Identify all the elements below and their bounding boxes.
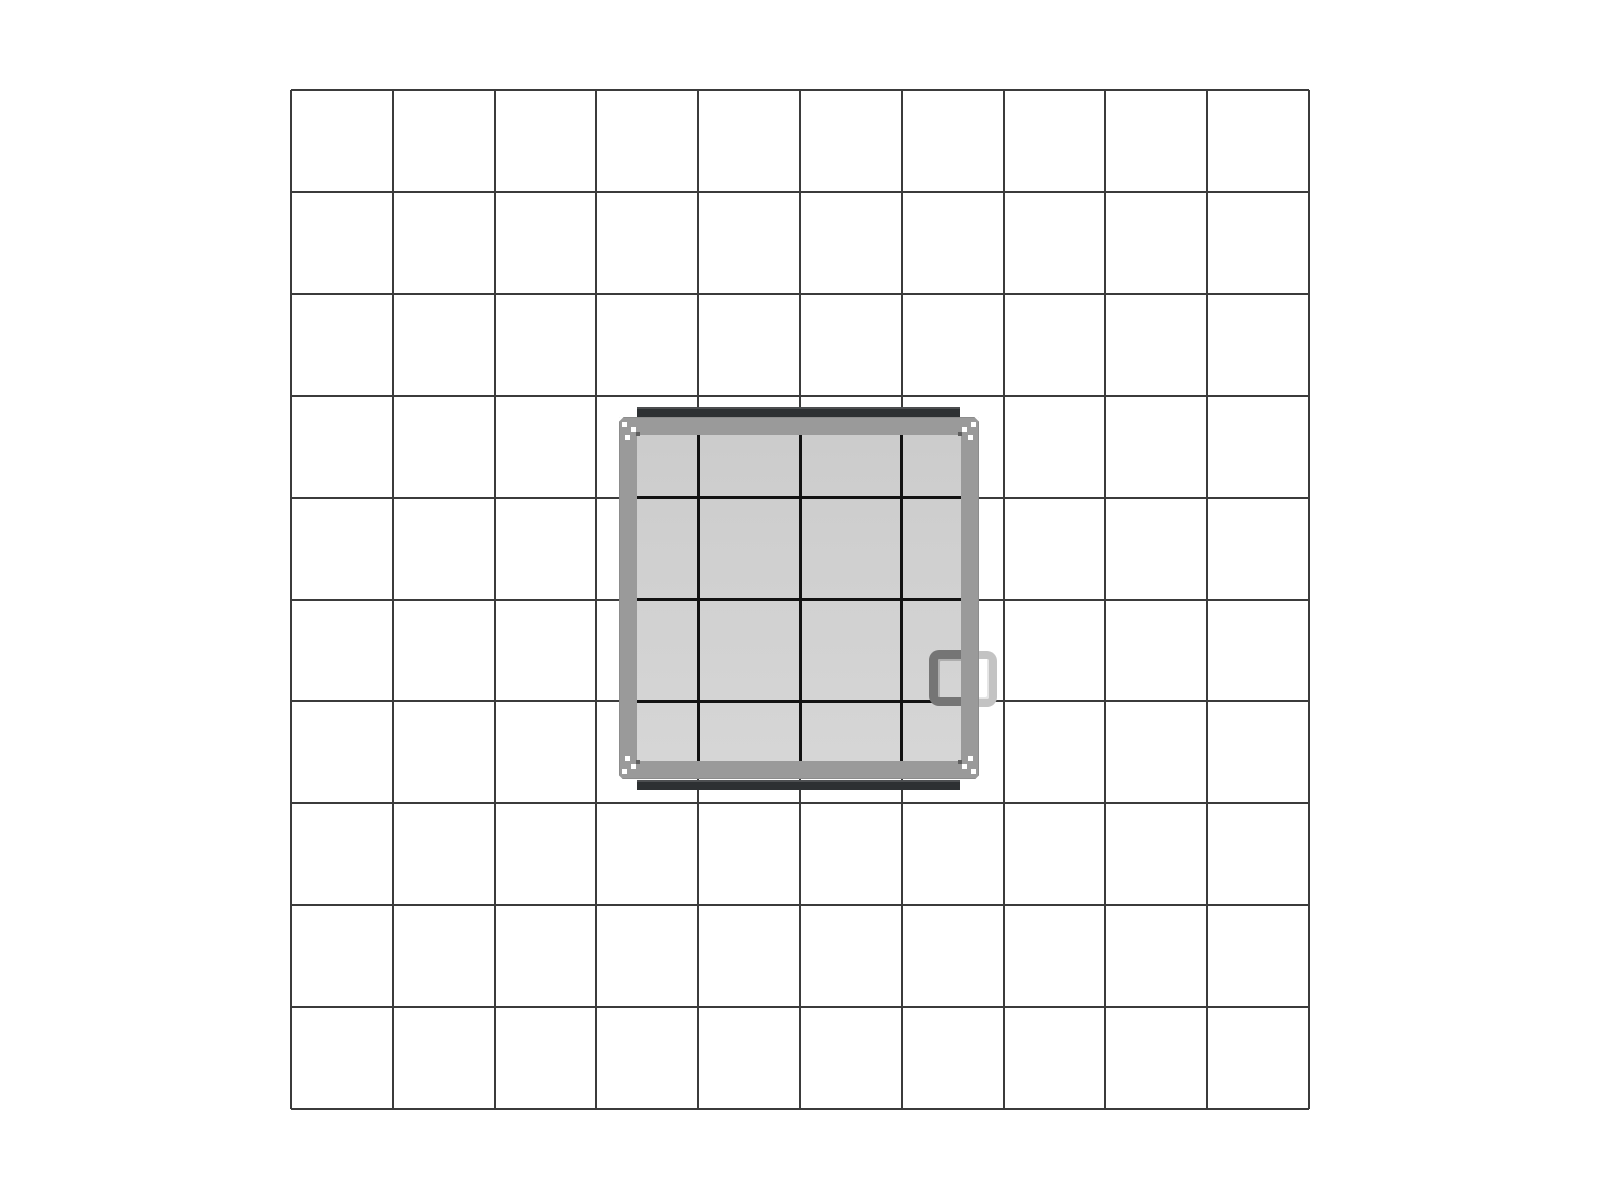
corner-screw [631,764,636,769]
corner-screw [971,422,976,427]
corner-tick [636,432,640,436]
corner-screw [962,764,967,769]
corner-screw [968,435,973,440]
corner-screw [968,756,973,761]
grid-hline [291,191,1309,193]
bottom-hinge-bar [637,780,960,790]
panel-frame [620,418,978,778]
top-hinge-bar [637,407,960,417]
grid-hline [291,802,1309,804]
corner-tick [958,760,962,764]
grid-hline [291,1006,1309,1008]
grid-hline [291,904,1309,906]
grid-hline [291,89,1309,91]
corner-screw [962,427,967,432]
grid-hline [291,293,1309,295]
corner-tick [636,760,640,764]
corner-screw [625,756,630,761]
grid-hline [291,1108,1309,1110]
drawing-canvas [0,0,1600,1200]
corner-screw [622,769,627,774]
corner-screw [622,422,627,427]
corner-screw [971,769,976,774]
corner-screw [625,435,630,440]
grid-hline [291,395,1309,397]
corner-tick [958,432,962,436]
